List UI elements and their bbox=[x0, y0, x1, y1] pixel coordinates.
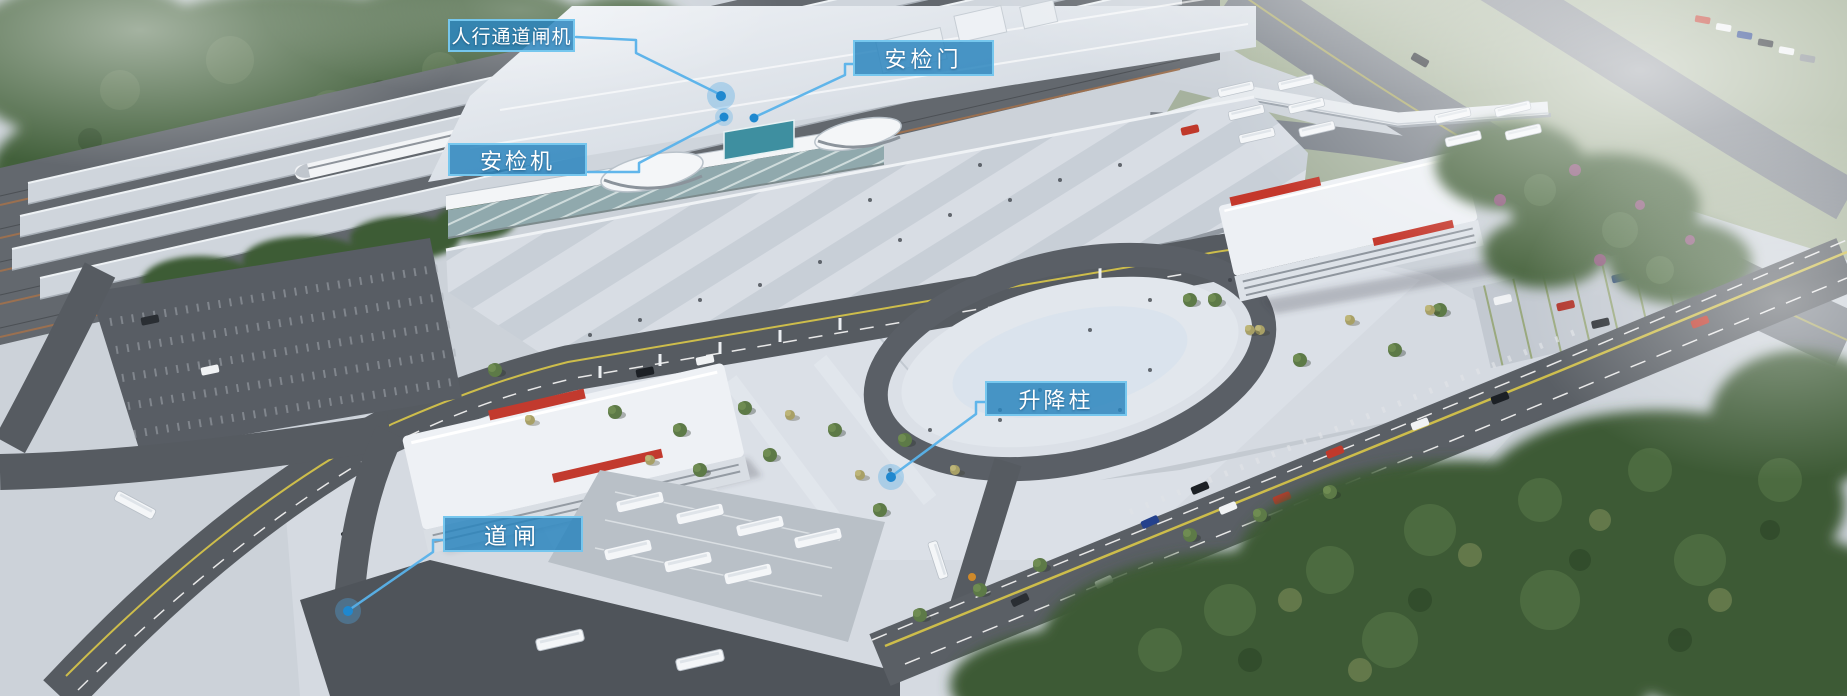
leader-security-scanner bbox=[588, 119, 723, 172]
callout-label: 安检门 bbox=[884, 42, 962, 74]
callout-label: 升降柱 bbox=[1018, 383, 1093, 415]
marker-dots bbox=[335, 82, 904, 624]
annotation-overlay bbox=[0, 0, 1847, 696]
leader-road-barrier-gate bbox=[349, 540, 443, 610]
callout-label: 道闸 bbox=[484, 517, 542, 551]
leader-lifting-bollard bbox=[892, 402, 985, 476]
callout-pedestrian-channel-gate[interactable]: 人行通道闸机 bbox=[448, 19, 575, 52]
callout-lifting-bollard[interactable]: 升降柱 bbox=[985, 381, 1127, 416]
leader-pedestrian-channel-gate bbox=[576, 37, 719, 94]
callout-label: 安检机 bbox=[480, 144, 555, 176]
station-aerial-diagram: 人行通道闸机 安检门 安检机 升降柱 道闸 bbox=[0, 0, 1847, 696]
leader-security-door bbox=[755, 64, 853, 117]
callout-security-door[interactable]: 安检门 bbox=[853, 40, 994, 76]
callout-label: 人行通道闸机 bbox=[451, 22, 571, 49]
callout-security-scanner[interactable]: 安检机 bbox=[448, 143, 587, 176]
callout-road-barrier-gate[interactable]: 道闸 bbox=[443, 516, 583, 552]
